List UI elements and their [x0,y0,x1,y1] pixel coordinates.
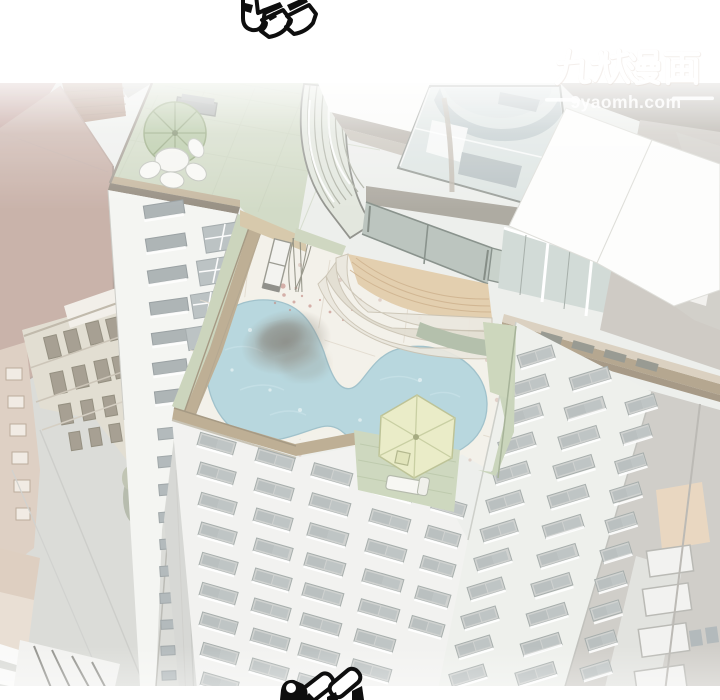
svg-text:9yaomh.com: 9yaomh.com [571,92,682,112]
